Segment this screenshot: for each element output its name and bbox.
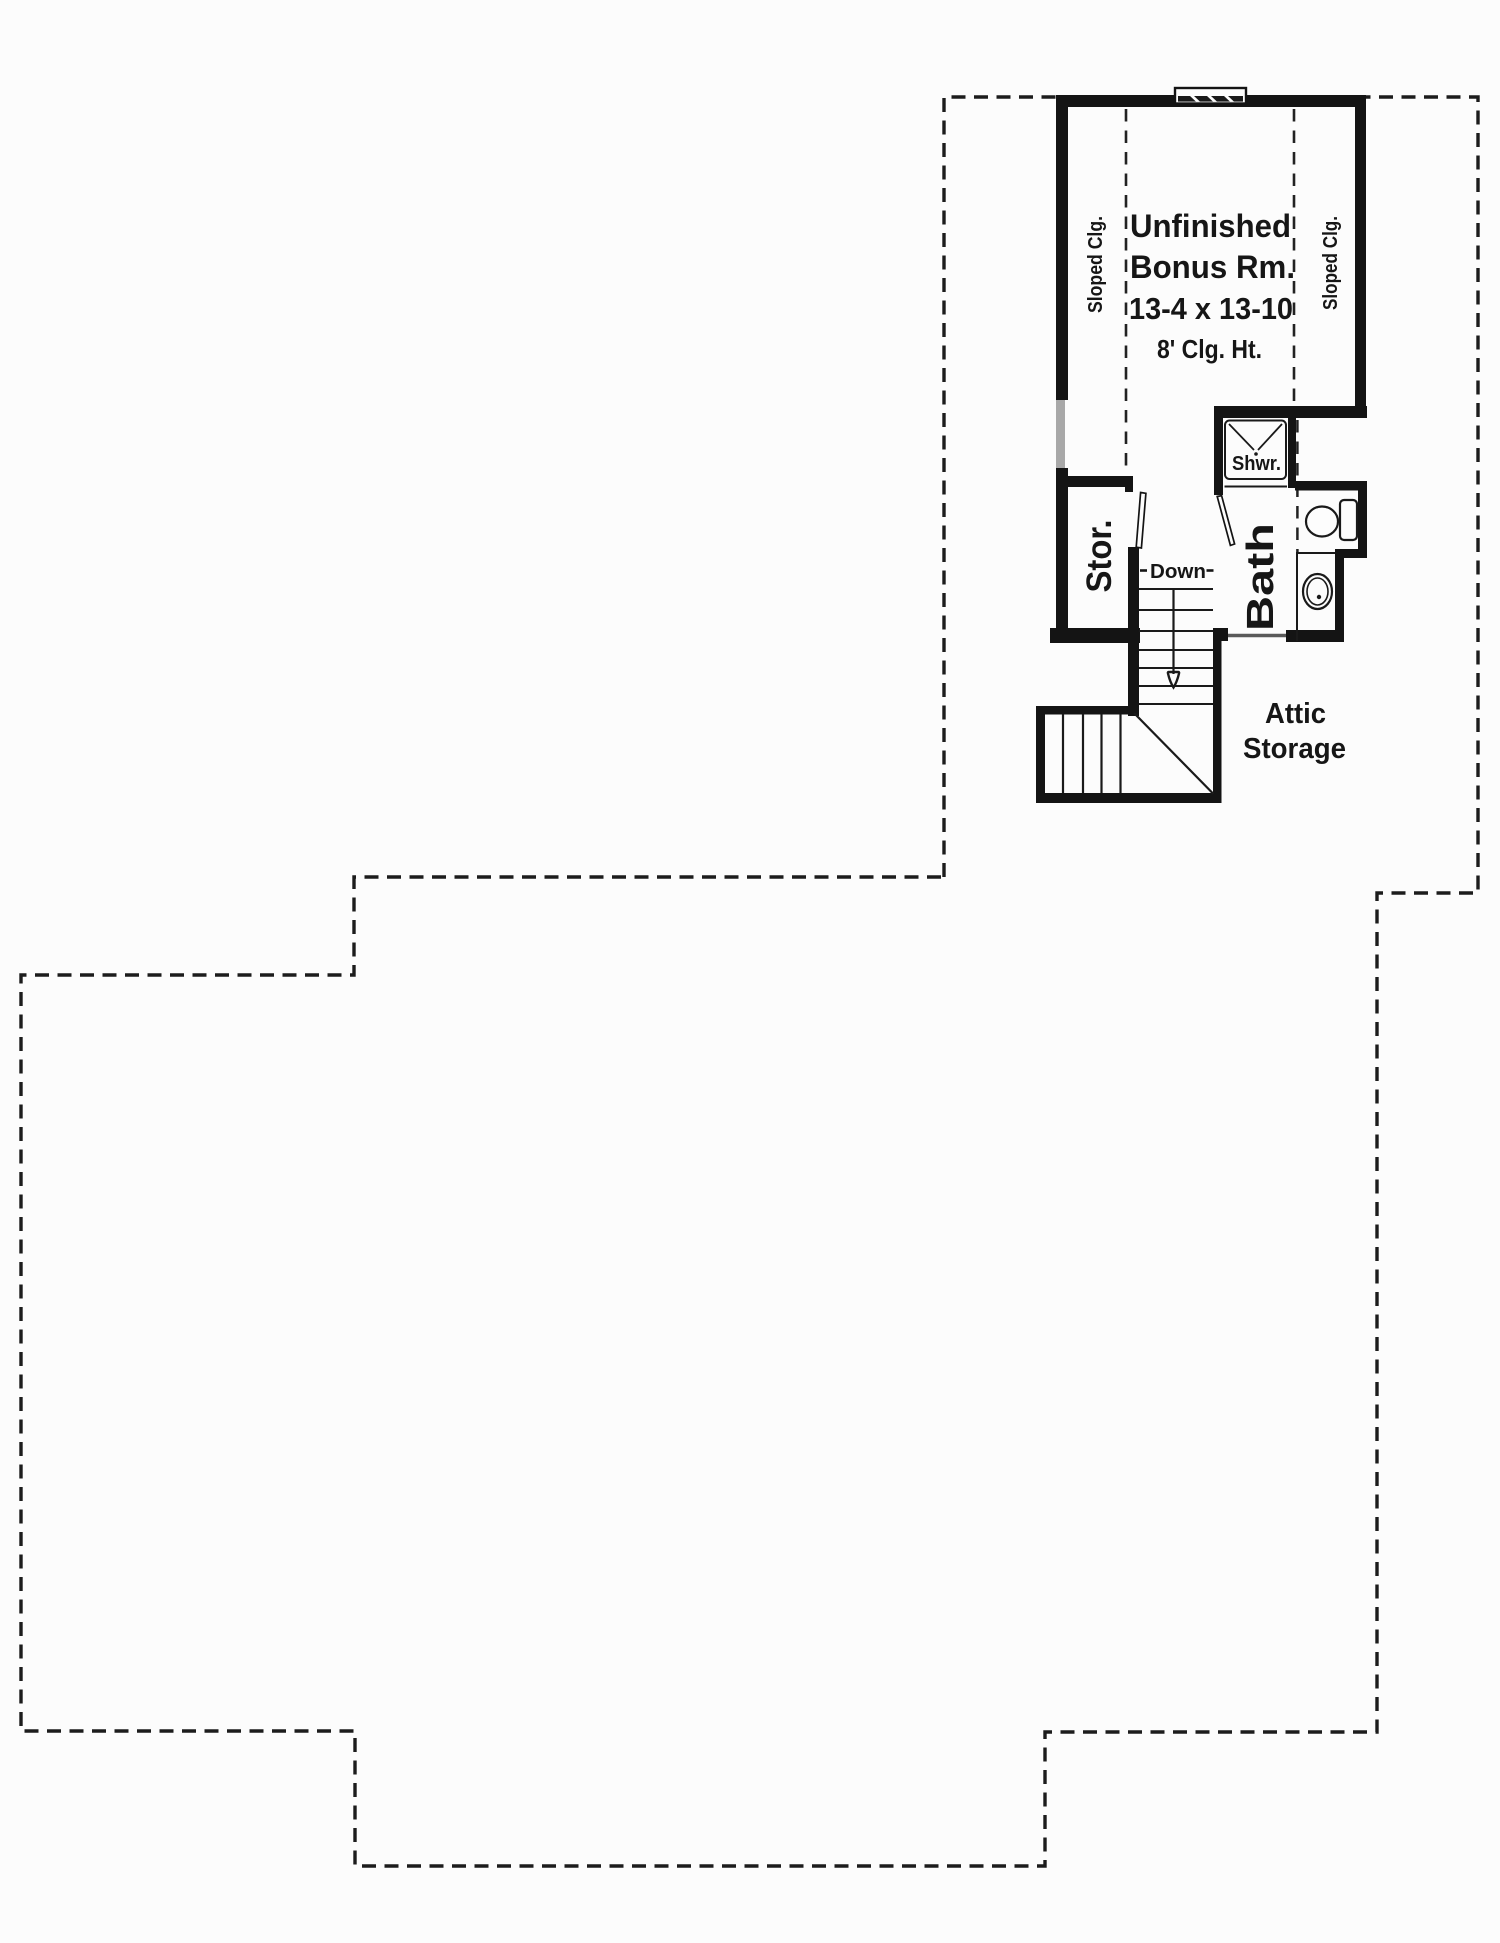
- svg-text:Bonus Rm.: Bonus Rm.: [1130, 249, 1295, 285]
- svg-text:Unfinished: Unfinished: [1130, 208, 1291, 244]
- svg-text:Bath: Bath: [1240, 523, 1282, 631]
- svg-text:Storage: Storage: [1243, 733, 1346, 765]
- svg-text:Sloped Clg.: Sloped Clg.: [1320, 216, 1342, 310]
- svg-text:Sloped Clg.: Sloped Clg.: [1085, 216, 1107, 313]
- svg-text:Down: Down: [1150, 561, 1206, 583]
- svg-text:13-4 x 13-10: 13-4 x 13-10: [1129, 291, 1293, 326]
- svg-text:Shwr.: Shwr.: [1232, 453, 1281, 475]
- svg-text:Attic: Attic: [1265, 698, 1326, 730]
- svg-text:Stor.: Stor.: [1080, 520, 1119, 593]
- svg-text:8' Clg. Ht.: 8' Clg. Ht.: [1157, 334, 1262, 364]
